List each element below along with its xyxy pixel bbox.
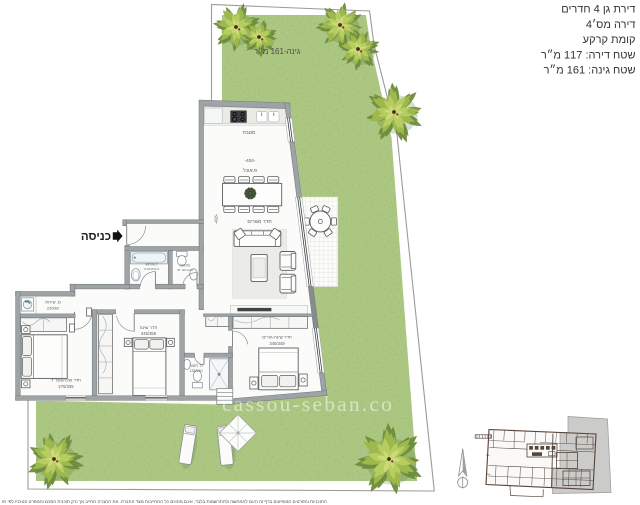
svg-text:דירת גן 4 חדרים: דירת גן 4 חדרים bbox=[561, 4, 635, 16]
svg-text:275/335: 275/335 bbox=[58, 384, 74, 389]
svg-text:90/150: 90/150 bbox=[180, 263, 190, 267]
svg-text:התוכניות והפרטים המופיעים בדף: התוכניות והפרטים המופיעים בדף זה הינם לה… bbox=[2, 499, 327, 504]
svg-text:ש. אורחים: ש. אורחים bbox=[177, 268, 193, 272]
svg-text:שטח דירה: 117 מ״ר: שטח דירה: 117 מ״ר bbox=[541, 48, 636, 61]
svg-text:cassou-seban.co: cassou-seban.co bbox=[222, 392, 394, 416]
svg-text:חדר שינה/ממ״ד: חדר שינה/ממ״ד bbox=[51, 378, 81, 383]
svg-text:176/185: 176/185 bbox=[145, 262, 157, 266]
svg-text:-416-: -416- bbox=[214, 213, 219, 224]
svg-text:135/240: 135/240 bbox=[190, 369, 203, 373]
svg-text:345/349: 345/349 bbox=[269, 341, 285, 346]
svg-text:230/82: 230/82 bbox=[47, 306, 60, 311]
svg-text:-404-: -404- bbox=[245, 158, 256, 163]
svg-text:גינה-161 מ״ר: גינה-161 מ״ר bbox=[254, 47, 301, 56]
svg-text:מ. שירות: מ. שירות bbox=[45, 300, 61, 305]
svg-text:ח' רחצה: ח' רחצה bbox=[189, 364, 203, 368]
svg-text:חדר שינה: חדר שינה bbox=[140, 325, 158, 330]
svg-text:פ.אוכל: פ.אוכל bbox=[243, 167, 257, 174]
svg-text:345/356: 345/356 bbox=[141, 331, 157, 336]
svg-text:ח.אמבטיה: ח.אמבטיה bbox=[143, 267, 159, 271]
svg-text:כניסה: כניסה bbox=[81, 231, 111, 243]
svg-text:מטבח: מטבח bbox=[243, 130, 257, 136]
svg-text:שטח גינה: 161 מ״ר: שטח גינה: 161 מ״ר bbox=[544, 64, 636, 77]
svg-text:חדר שינה-הורים: חדר שינה-הורים bbox=[262, 335, 292, 340]
svg-text:דירה מס׳4: דירה מס׳4 bbox=[586, 18, 636, 31]
svg-text:קומת קרקע: קומת קרקע bbox=[583, 34, 636, 46]
svg-text:חדר מגורים: חדר מגורים bbox=[247, 219, 271, 225]
